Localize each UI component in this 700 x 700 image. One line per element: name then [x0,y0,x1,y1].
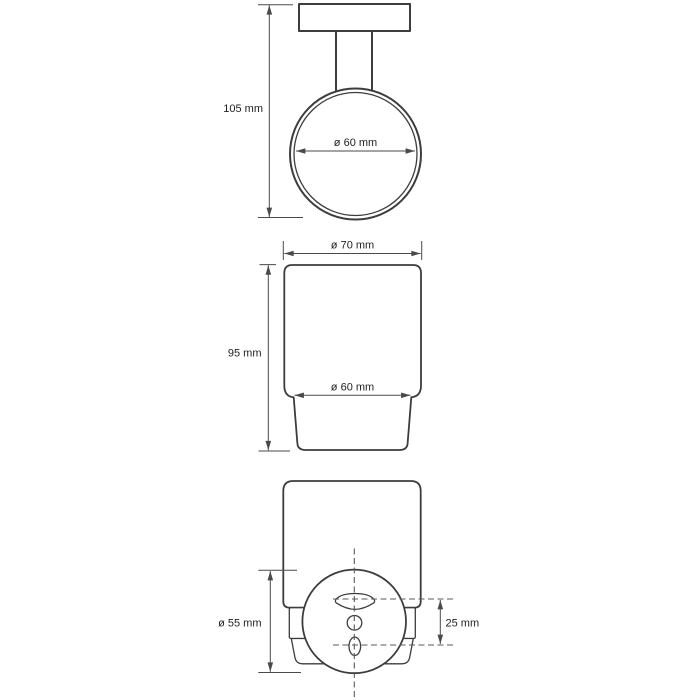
assembly-back-view: 25 mm ø 55 mm [218,481,479,697]
holder-front-view: ø 60 mm 105 mm [223,4,421,220]
dim-label-holder-height: 105 mm [223,103,263,115]
dim-label-hole-spacing: 25 mm [446,618,480,630]
dim-label-plate-diameter: ø 55 mm [218,618,261,630]
dim-tumbler-height: 95 mm [228,265,290,451]
tumbler-front-view: ø 70 mm ø 60 mm 95 mm [228,240,422,452]
tumbler-outline [284,265,421,450]
holder-ring-outer [290,89,421,220]
dim-label-tumbler-body-diameter: ø 60 mm [331,382,374,394]
technical-drawing: ø 60 mm 105 mm ø 70 mm ø 60 mm [0,0,700,700]
dim-label-ring-inner-diameter: ø 60 mm [334,137,377,149]
wall-plate [299,4,410,31]
dim-label-tumbler-height: 95 mm [228,348,262,360]
dim-hole-spacing: 25 mm [440,600,479,644]
dim-tumbler-top-diameter: ø 70 mm [283,240,421,261]
drawing-canvas: ø 60 mm 105 mm ø 70 mm ø 60 mm [0,0,700,700]
dim-label-tumbler-top-diameter: ø 70 mm [331,240,374,252]
dim-holder-height: 105 mm [223,5,303,218]
